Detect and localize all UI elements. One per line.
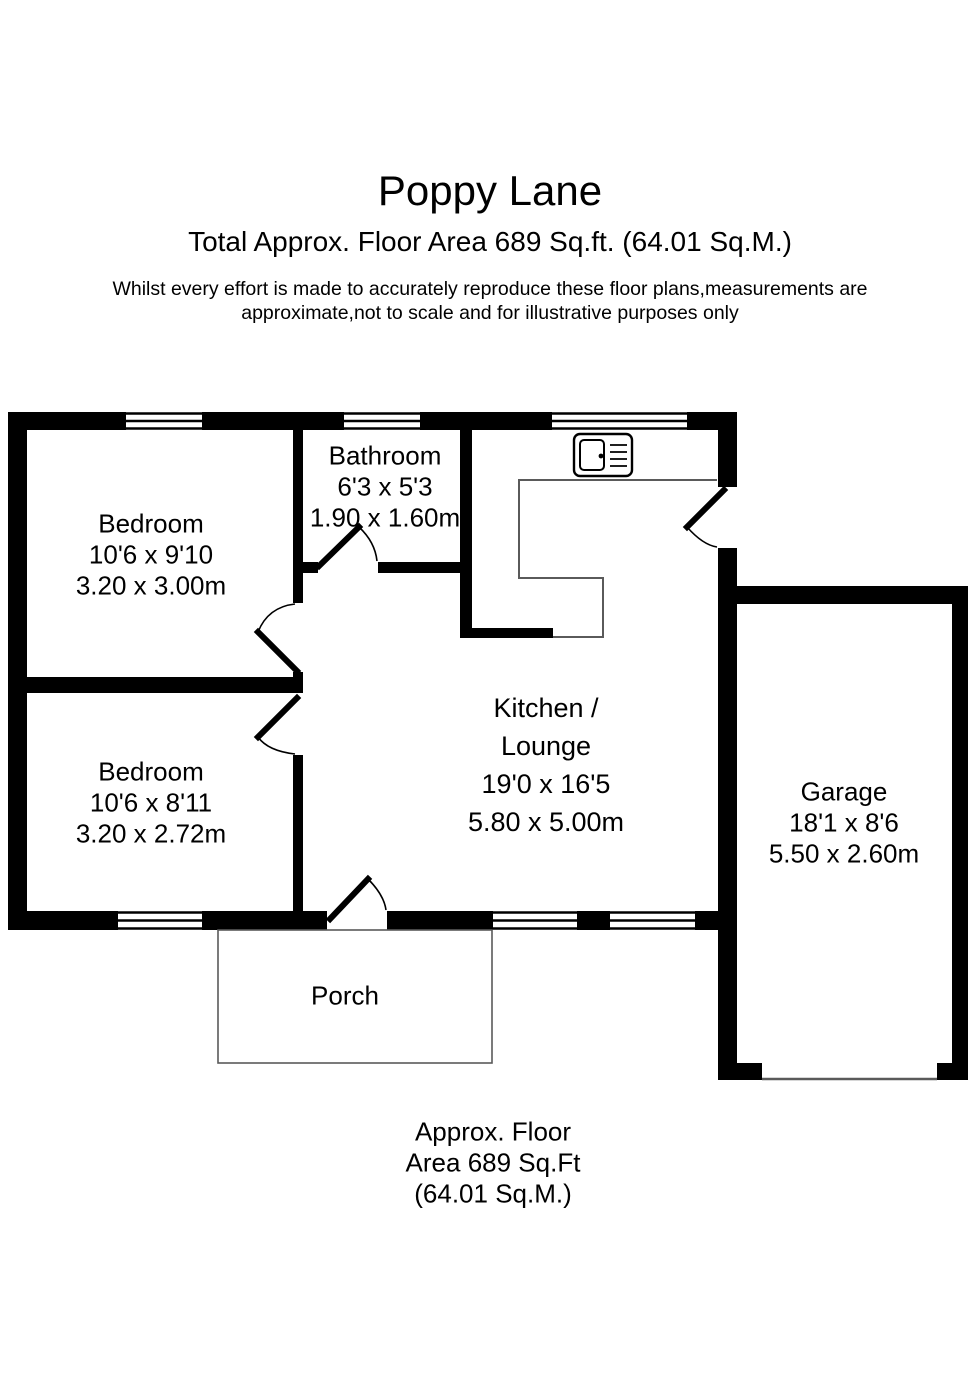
window-kitchen-top [552,412,687,430]
bathroom-metric: 1.90 x 1.60m [310,503,460,534]
wall-garage-bottom-right-cap [937,1063,968,1080]
wall-bedroom1-right [293,430,303,603]
footer-line-3: (64.01 Sq.M.) [406,1179,581,1210]
window-bedroom2-bottom [118,911,202,930]
porch-label: Porch [311,981,379,1012]
porch-name: Porch [311,981,379,1012]
garage-metric: 5.50 x 2.60m [769,839,919,870]
window-lounge-bottom-2 [610,911,695,930]
wall-garage-top [737,586,968,604]
window-lounge-bottom-1 [493,911,577,930]
wall-bathroom-bottom-right [378,562,460,573]
sink-icon [574,434,632,476]
bedroom2-metric: 3.20 x 2.72m [76,819,226,850]
garage-imperial: 18'1 x 8'6 [769,808,919,839]
bathroom-imperial: 6'3 x 5'3 [310,472,460,503]
garage-label: Garage 18'1 x 8'6 5.50 x 2.60m [769,777,919,870]
door-bedroom1 [258,604,297,671]
window-bathroom-top [344,412,420,430]
bedroom2-imperial: 10'6 x 8'11 [76,788,226,819]
footer-area-label: Approx. Floor Area 689 Sq.Ft (64.01 Sq.M… [406,1117,581,1210]
bathroom-label: Bathroom 6'3 x 5'3 1.90 x 1.60m [310,441,460,534]
kitchen-counter-outline [519,480,717,637]
wall-garage-right [952,586,968,1080]
wall-kitchen-left [460,430,472,638]
bedroom1-name: Bedroom [76,509,226,540]
bedroom2-label: Bedroom 10'6 x 8'11 3.20 x 2.72m [76,757,226,850]
wall-bathroom-bottom-left [303,562,318,573]
bedroom1-imperial: 10'6 x 9'10 [76,540,226,571]
bedroom1-label: Bedroom 10'6 x 9'10 3.20 x 3.00m [76,509,226,602]
window-bedroom1-top [126,412,202,430]
wall-bedroom2-right [293,755,303,911]
door-bedroom2 [258,698,297,754]
kitchen-lounge-imperial: 19'0 x 16'5 [468,765,624,803]
floorplan-page: Poppy Lane Total Approx. Floor Area 689 … [0,0,980,1386]
wall-kitchen-bottom-partial [460,628,553,638]
wall-bedroom-divider [27,677,303,693]
kitchen-lounge-metric: 5.80 x 5.00m [468,803,624,841]
footer-line-2: Area 689 Sq.Ft [406,1148,581,1179]
bathroom-name: Bathroom [310,441,460,472]
kitchen-lounge-label: Kitchen / Lounge 19'0 x 16'5 5.80 x 5.00… [468,689,624,841]
bedroom2-name: Bedroom [76,757,226,788]
kitchen-lounge-name-2: Lounge [468,727,624,765]
kitchen-lounge-name-1: Kitchen / [468,689,624,727]
wall-garage-bottom-left-cap [718,1063,762,1080]
footer-line-1: Approx. Floor [406,1117,581,1148]
garage-name: Garage [769,777,919,808]
wall-left [8,412,27,930]
bedroom1-metric: 3.20 x 3.00m [76,571,226,602]
